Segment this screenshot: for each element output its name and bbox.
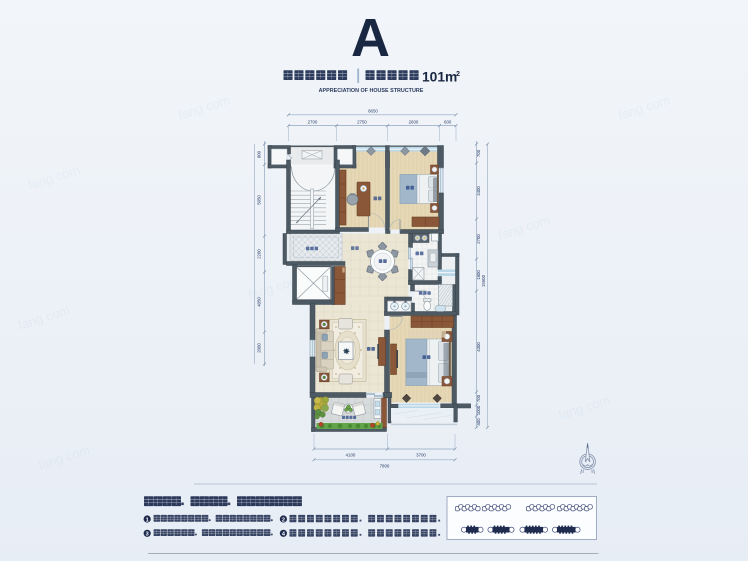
svg-text:2: 2: [282, 517, 285, 523]
svg-text:2200: 2200: [256, 249, 261, 259]
svg-text:1000: 1000: [476, 405, 481, 415]
svg-text:600: 600: [444, 119, 452, 124]
svg-text:APPRECIATION OF HOUSE STRUCTUR: APPRECIATION OF HOUSE STRUCTURE: [319, 88, 424, 94]
svg-text:15500: 15500: [481, 274, 486, 287]
svg-text:700: 700: [476, 394, 481, 402]
svg-text:1: 1: [146, 517, 149, 523]
svg-text:A: A: [351, 8, 390, 68]
svg-text:4100: 4100: [346, 452, 356, 457]
svg-text:2700: 2700: [476, 234, 481, 244]
svg-text:2750: 2750: [357, 119, 367, 124]
svg-text:3400: 3400: [476, 186, 481, 196]
svg-text:101m: 101m: [422, 69, 457, 84]
svg-text:7800: 7800: [380, 464, 390, 469]
svg-text:5050: 5050: [256, 195, 261, 205]
svg-text:2: 2: [456, 69, 460, 78]
svg-text:2700: 2700: [308, 119, 318, 124]
svg-text:3: 3: [146, 532, 149, 538]
svg-text:800: 800: [256, 150, 261, 158]
svg-text:700: 700: [476, 149, 481, 157]
svg-text:8650: 8650: [368, 108, 378, 113]
svg-text:4300: 4300: [476, 342, 481, 352]
svg-text:3700: 3700: [416, 452, 426, 457]
svg-text:2000: 2000: [256, 343, 261, 353]
svg-text:400: 400: [476, 418, 481, 426]
svg-text:2600: 2600: [409, 119, 419, 124]
svg-text:4050: 4050: [256, 297, 261, 307]
